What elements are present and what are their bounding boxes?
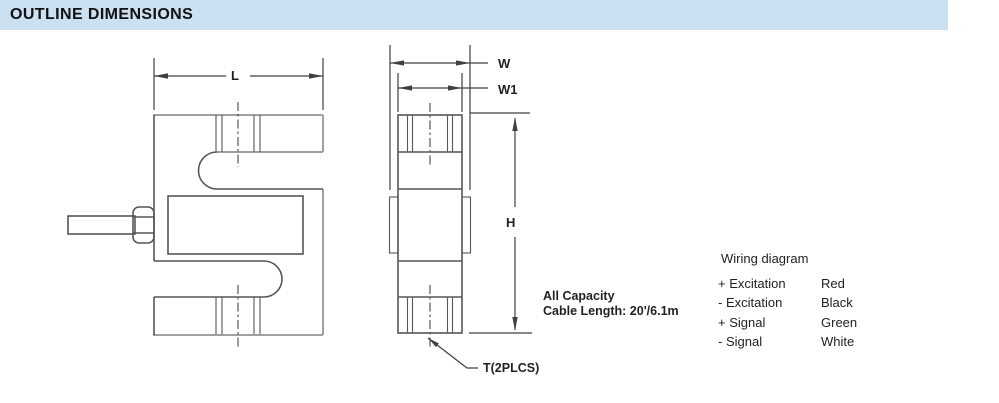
s-cell-body xyxy=(153,115,323,335)
mounting-plate-hatch-right xyxy=(462,197,471,253)
dim-label-height: H xyxy=(506,216,515,229)
wiring-row: - Excitation Black xyxy=(718,293,857,312)
wiring-color: Red xyxy=(821,274,857,293)
dim-label-length: L xyxy=(231,69,239,82)
wiring-row: - Signal White xyxy=(718,332,857,351)
side-body xyxy=(390,103,471,348)
wiring-color: Green xyxy=(821,313,857,332)
wiring-title: Wiring diagram xyxy=(721,251,857,267)
wiring-signal: - Excitation xyxy=(718,293,821,312)
wiring-color: Black xyxy=(821,293,857,312)
thread-callout-leader xyxy=(428,338,478,368)
cable-assembly xyxy=(68,207,154,243)
wiring-signal: + Excitation xyxy=(718,274,821,293)
dim-arrow-right xyxy=(309,73,323,78)
thread-hole-lines xyxy=(408,115,453,333)
slot-end-arcs xyxy=(199,152,283,297)
wiring-signal: + Signal xyxy=(718,313,821,332)
dim-arrow-left xyxy=(154,73,168,78)
width-dimension xyxy=(390,45,488,190)
cable-note-line2: Cable Length: 20'/6.1m xyxy=(543,304,679,319)
front-view-drawing xyxy=(68,58,323,349)
cable-gland-nut xyxy=(133,207,154,243)
wiring-color: White xyxy=(821,332,857,351)
wiring-row: + Excitation Red xyxy=(718,274,857,293)
thread-callout-label: T(2PLCS) xyxy=(483,362,539,375)
wiring-row: + Signal Green xyxy=(718,313,857,332)
thread-hole-lines xyxy=(216,102,260,349)
cable-note: All Capacity Cable Length: 20'/6.1m xyxy=(543,289,679,318)
wiring-rows: + Excitation Red - Excitation Black + Si… xyxy=(718,274,857,352)
cable xyxy=(68,216,135,234)
label-plate xyxy=(168,196,303,254)
dim-label-width-inner: W1 xyxy=(498,83,518,96)
dim-label-width: W xyxy=(498,57,510,70)
wiring-diagram: Wiring diagram + Excitation Red - Excita… xyxy=(718,251,857,352)
wiring-signal: - Signal xyxy=(718,332,821,351)
mounting-plate-hatch-left xyxy=(390,197,399,253)
height-dimension xyxy=(469,113,532,333)
inner-width-dimension xyxy=(398,73,488,112)
cable-note-line1: All Capacity xyxy=(543,289,679,304)
datasheet-outline-dimensions-section: OUTLINE DIMENSIONS xyxy=(0,0,999,403)
